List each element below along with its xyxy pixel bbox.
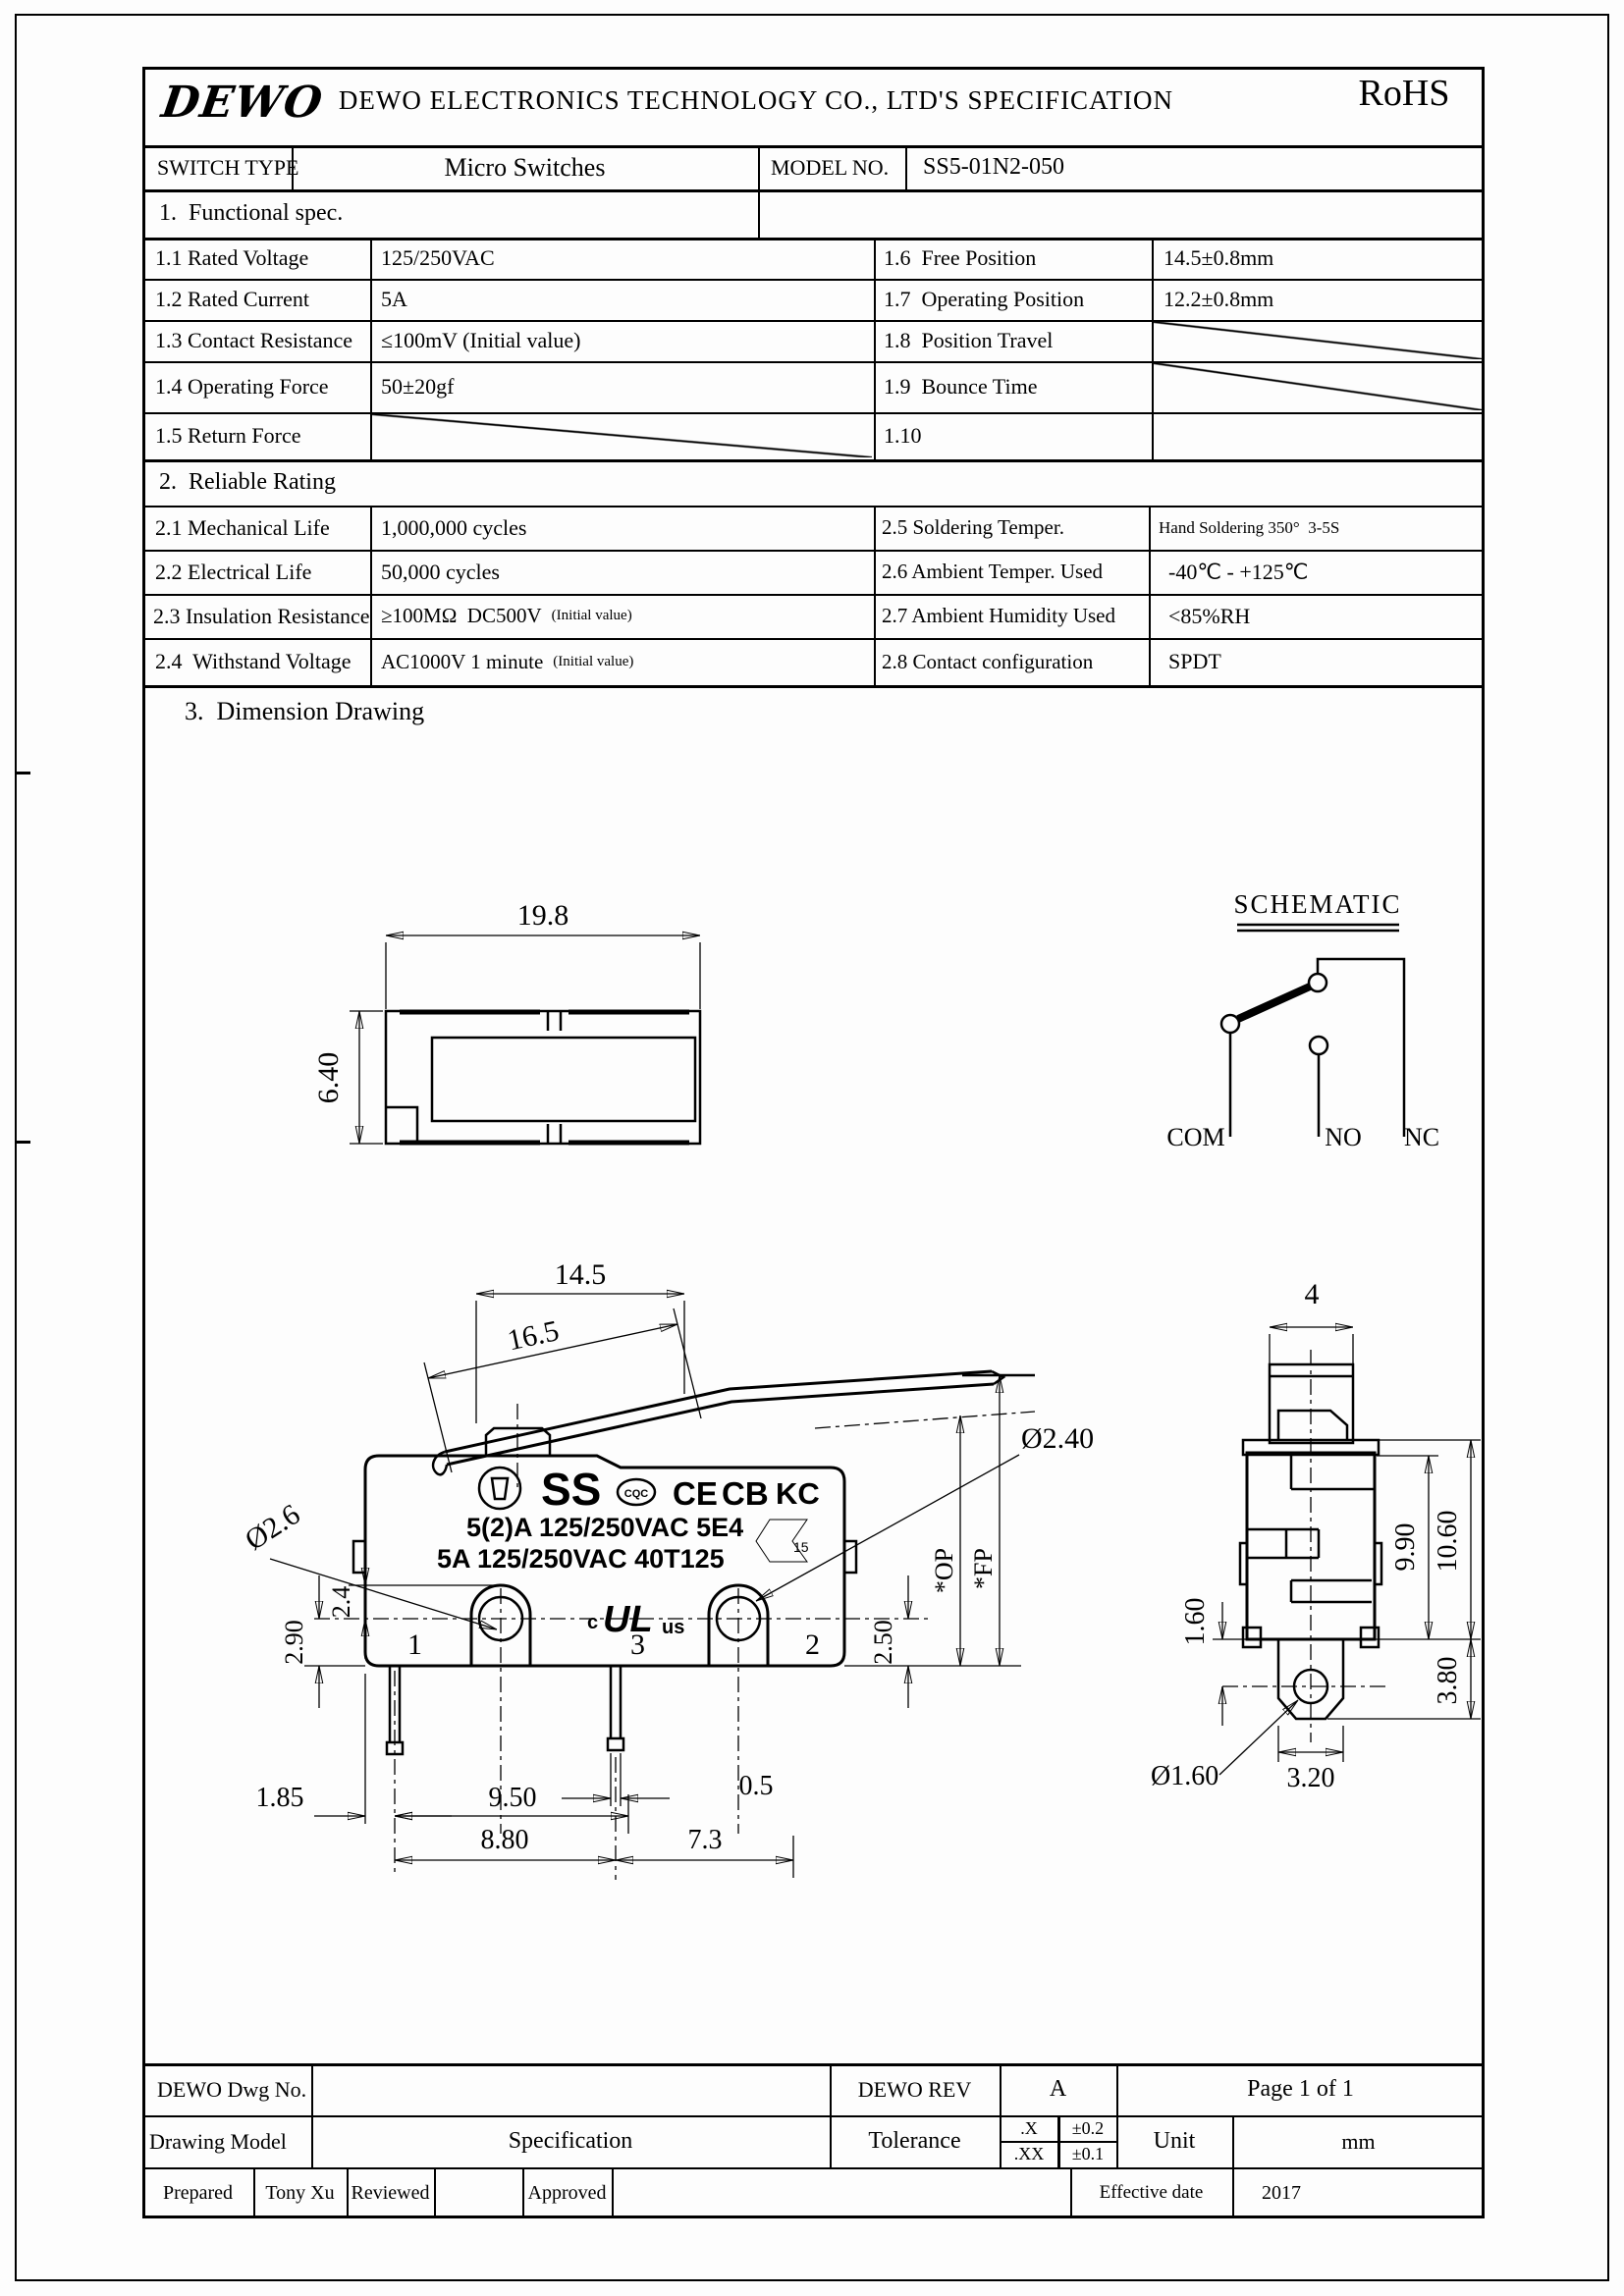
terminal-1-label: 1 [407, 1629, 422, 1661]
spec-value: 125/250VAC [381, 238, 867, 279]
empty-cell-diagonal [1154, 363, 1483, 410]
dim-2-90: 2.90 [280, 1620, 308, 1665]
drawing-model-value: Specification [311, 2115, 830, 2167]
model-no-value: SS5-01N2-050 [923, 145, 1218, 189]
rohs-mark: RoHS [1330, 69, 1478, 118]
dia-2-40-label: Ø2.40 [1021, 1422, 1094, 1455]
ul-mark: UL [603, 1599, 653, 1640]
terminal-3-label: 3 [630, 1629, 645, 1661]
dim-3-20: 3.20 [1287, 1763, 1335, 1793]
dim-4: 4 [1305, 1278, 1320, 1310]
spec-value-note: (Initial value) [552, 608, 632, 624]
ul-us-mark: us [662, 1617, 684, 1638]
spec-value: Hand Soldering 350° 3-5S [1159, 506, 1483, 550]
schematic-title: SCHEMATIC [1233, 889, 1401, 919]
dim-3-80: 3.80 [1433, 1657, 1463, 1705]
spec-value-main: AC1000V 1 minute [381, 650, 543, 674]
ss-mark: SS [541, 1464, 601, 1515]
spec-label: 1.2 Rated Current [155, 279, 366, 320]
schematic-nc-label: NC [1404, 1123, 1439, 1151]
spec-label: 1.3 Contact Resistance [155, 320, 369, 361]
spec-label: 1.4 Operating Force [155, 361, 366, 412]
terminal-2-label: 2 [805, 1629, 820, 1661]
switch-type-label: SWITCH TYPE [157, 145, 290, 189]
dim-6-40: 6.40 [312, 1052, 345, 1104]
table-line [1149, 506, 1151, 685]
spec-label: 1.6 Free Position [884, 238, 1147, 279]
op-label: *OP [930, 1548, 958, 1593]
table-line [612, 2167, 614, 2218]
tolerance-x-value: ±0.2 [1059, 2115, 1116, 2141]
dim-0-5: 0.5 [739, 1771, 774, 1801]
table-line [758, 145, 760, 238]
spec-value: 5A [381, 279, 867, 320]
schematic-com-label: COM [1166, 1123, 1224, 1151]
tolerance-xx-value: ±0.1 [1059, 2141, 1116, 2167]
dim-10-60: 10.60 [1433, 1511, 1463, 1573]
empty-cell-diagonal [1154, 322, 1483, 359]
cqc-mark: CQC [624, 1488, 649, 1500]
cb-mark: CB [722, 1475, 769, 1512]
spec-value-main: ≥100MΩ DC500V [381, 604, 542, 628]
ul-c-mark: c [587, 1612, 598, 1633]
spec-value: 50±20gf [381, 361, 867, 412]
section2-title: 2. Reliable Rating [159, 459, 650, 506]
spec-value: <85%RH [1168, 594, 1492, 638]
dwg-no-label: DEWO Dwg No. [157, 2063, 309, 2115]
table-line [874, 506, 876, 685]
schematic-drawing: SCHEMATIC COM NO NC [1159, 864, 1581, 1188]
spec-label: 2.2 Electrical Life [155, 550, 369, 594]
section3-title: 3. Dimension Drawing [185, 689, 676, 733]
dim-7-3: 7.3 [688, 1825, 723, 1855]
spec-value: 50,000 cycles [381, 550, 867, 594]
dim-1-85: 1.85 [256, 1783, 304, 1813]
page-indicator: Page 1 of 1 [1116, 2063, 1485, 2115]
spec-document-page: DEWO DEWO ELECTRONICS TECHNOLOGY CO., LT… [0, 0, 1624, 2296]
spec-label: 2.7 Ambient Humidity Used [882, 594, 1147, 638]
table-line [905, 145, 907, 189]
table-line [434, 2167, 436, 2218]
dim-2-50: 2.50 [869, 1620, 897, 1665]
switch-type-value: Micro Switches [292, 145, 758, 189]
drawing-model-label: Drawing Model [149, 2115, 311, 2167]
spec-label: 1.9 Bounce Time [884, 361, 1147, 412]
spec-label: 2.6 Ambient Temper. Used [882, 550, 1147, 594]
rating-line1: 5(2)A 125/250VAC 5E4 [466, 1513, 743, 1542]
table-line [142, 685, 1485, 688]
tolerance-x-label: .X [1001, 2115, 1056, 2141]
company-logo: DEWO [158, 75, 294, 132]
dim-14-5: 14.5 [555, 1258, 607, 1291]
dia-1-60-label: Ø1.60 [1151, 1761, 1218, 1791]
prepared-value: Tony Xu [253, 2167, 347, 2218]
spec-value: AC1000V 1 minute (Initial value) [381, 638, 867, 685]
rating-line2: 5A 125/250VAC 40T125 [437, 1544, 725, 1574]
dim-1-60: 1.60 [1180, 1598, 1211, 1646]
rev-value: A [1000, 2063, 1116, 2115]
dim-8-80: 8.80 [481, 1825, 529, 1855]
document-title: DEWO ELECTRONICS TECHNOLOGY CO., LTD'S S… [295, 79, 1218, 122]
ce-mark: CE [673, 1475, 718, 1512]
approved-label: Approved [522, 2167, 612, 2218]
dim-9-50: 9.50 [489, 1783, 537, 1813]
spec-label: 2.4 Withstand Voltage [155, 638, 369, 685]
reviewed-label: Reviewed [347, 2167, 434, 2218]
spec-value: 14.5±0.8mm [1164, 238, 1478, 279]
spec-label: 1.8 Position Travel [884, 320, 1147, 361]
spec-value: 12.2±0.8mm [1164, 279, 1478, 320]
dim-9-90: 9.90 [1390, 1523, 1421, 1572]
empty-cell-diagonal [372, 414, 872, 457]
fold-mark [15, 772, 30, 774]
spec-label: 1.7 Operating Position [884, 279, 1147, 320]
tolerance-xx-label: .XX [1001, 2141, 1056, 2167]
dim-2-4: 2.4 [327, 1586, 355, 1619]
model-no-label: MODEL NO. [771, 145, 903, 189]
spec-value: 1,000,000 cycles [381, 506, 867, 550]
rev-label: DEWO REV [830, 2063, 1000, 2115]
side-view-drawing: 4 9.90 10.60 [1129, 1256, 1581, 1904]
effective-date-value: 2017 [1262, 2167, 1458, 2218]
spec-label: 1.1 Rated Voltage [155, 238, 366, 279]
dia-2-6-label: Ø2.6 [240, 1498, 306, 1557]
spec-label: 2.1 Mechanical Life [155, 506, 369, 550]
spec-label: 1.10 [884, 412, 1147, 459]
front-view-drawing: 14.5 16.5 SS CQC CE CB KC 5(2)A 125/250V… [167, 1247, 1208, 1895]
table-line [874, 238, 876, 459]
spec-label: 2.5 Soldering Temper. [882, 506, 1147, 550]
spec-value: SPDT [1168, 638, 1492, 685]
tolerance-label: Tolerance [830, 2115, 1000, 2167]
unit-value: mm [1232, 2115, 1485, 2167]
spec-value-note: (Initial value) [553, 654, 633, 670]
top-view-drawing: 19.8 6.40 [236, 864, 923, 1217]
spec-value: -40℃ - +125℃ [1168, 550, 1492, 594]
spec-label: 2.8 Contact configuration [882, 638, 1147, 685]
effective-date-label: Effective date [1070, 2167, 1232, 2218]
kc-mark: KC [776, 1476, 820, 1511]
schematic-no-label: NO [1325, 1123, 1362, 1151]
unit-label: Unit [1116, 2115, 1232, 2167]
mark-15: 15 [793, 1539, 809, 1555]
spec-label: 2.3 Insulation Resistance [153, 594, 371, 638]
spec-value: ≤100mV (Initial value) [381, 320, 867, 361]
section1-title: 1. Functional spec. [159, 189, 650, 238]
fold-mark [15, 1141, 30, 1144]
dim-19-8: 19.8 [517, 899, 569, 932]
prepared-label: Prepared [142, 2167, 253, 2218]
fp-label: *FP [969, 1548, 998, 1589]
spec-label: 1.5 Return Force [155, 412, 366, 459]
spec-value: ≥100MΩ DC500V (Initial value) [381, 594, 867, 638]
